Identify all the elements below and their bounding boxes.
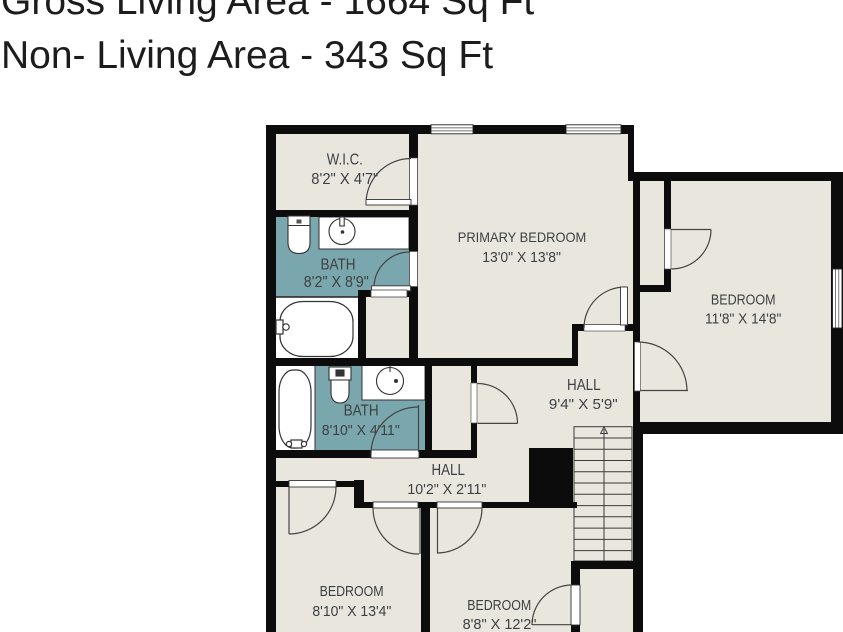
svg-text:Non- Living Area - 343 Sq Ft: Non- Living Area - 343 Sq Ft	[1, 34, 493, 77]
svg-text:10'2" X 2'11": 10'2" X 2'11"	[407, 481, 486, 498]
svg-text:Gross Living Area - 1664 Sq Ft: Gross Living Area - 1664 Sq Ft	[1, 0, 534, 23]
svg-text:8'10" X 4'11": 8'10" X 4'11"	[322, 422, 400, 439]
svg-text:8'2" X 4'7": 8'2" X 4'7"	[311, 171, 378, 188]
svg-text:BATH: BATH	[344, 403, 379, 420]
svg-text:HALL: HALL	[567, 377, 601, 394]
svg-text:W.I.C.: W.I.C.	[327, 152, 363, 169]
svg-text:BEDROOM: BEDROOM	[467, 597, 531, 614]
svg-text:8'10" X 13'4": 8'10" X 13'4"	[312, 603, 391, 620]
svg-text:HALL: HALL	[432, 462, 465, 479]
svg-text:BATH: BATH	[321, 256, 356, 273]
svg-text:8'2" X 8'9": 8'2" X 8'9"	[304, 274, 369, 291]
svg-text:9'4" X 5'9": 9'4" X 5'9"	[549, 396, 618, 413]
svg-text:8'8" X 12'2": 8'8" X 12'2"	[463, 616, 537, 632]
svg-text:11'8" X 14'8": 11'8" X 14'8"	[705, 311, 781, 328]
svg-text:PRIMARY BEDROOM: PRIMARY BEDROOM	[458, 229, 587, 245]
svg-text:13'0" X 13'8": 13'0" X 13'8"	[482, 250, 561, 266]
svg-text:BEDROOM: BEDROOM	[711, 292, 776, 309]
svg-text:BEDROOM: BEDROOM	[320, 583, 384, 600]
